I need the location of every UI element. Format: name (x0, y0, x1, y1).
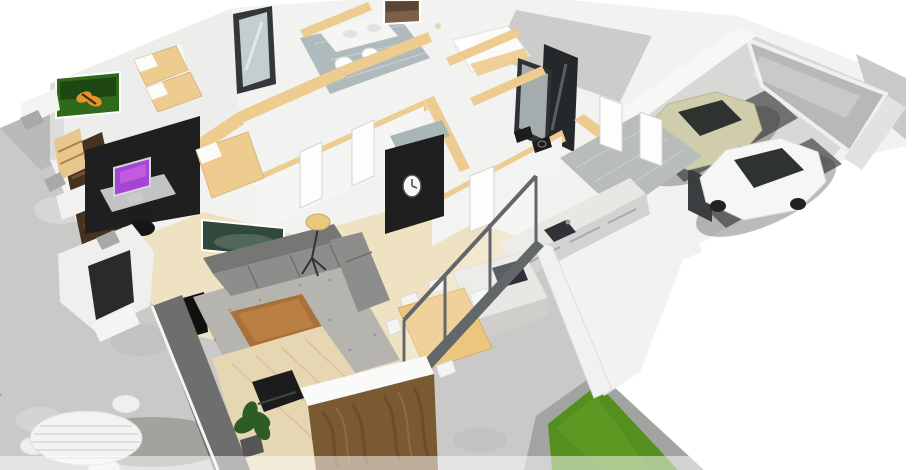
patio-chair (112, 395, 140, 413)
floor-lamp-shade (306, 214, 330, 230)
car-wheel (710, 200, 726, 212)
bottom-fade (0, 456, 912, 470)
faucet (566, 220, 571, 225)
wc-shower (385, 120, 450, 234)
glass-panel (239, 12, 270, 87)
interior-door (470, 166, 494, 232)
sink-basin (367, 24, 381, 32)
floorplan-3d-scene (0, 0, 912, 470)
concrete-speckle (454, 427, 506, 453)
interior-door (300, 142, 322, 208)
hall-door (640, 112, 662, 166)
hall-door (600, 96, 622, 152)
bedside-lamp (435, 23, 441, 29)
interior-door (352, 120, 374, 186)
sink-basin (343, 30, 357, 38)
car-wheel (790, 198, 806, 210)
floorplan-render (0, 0, 912, 470)
